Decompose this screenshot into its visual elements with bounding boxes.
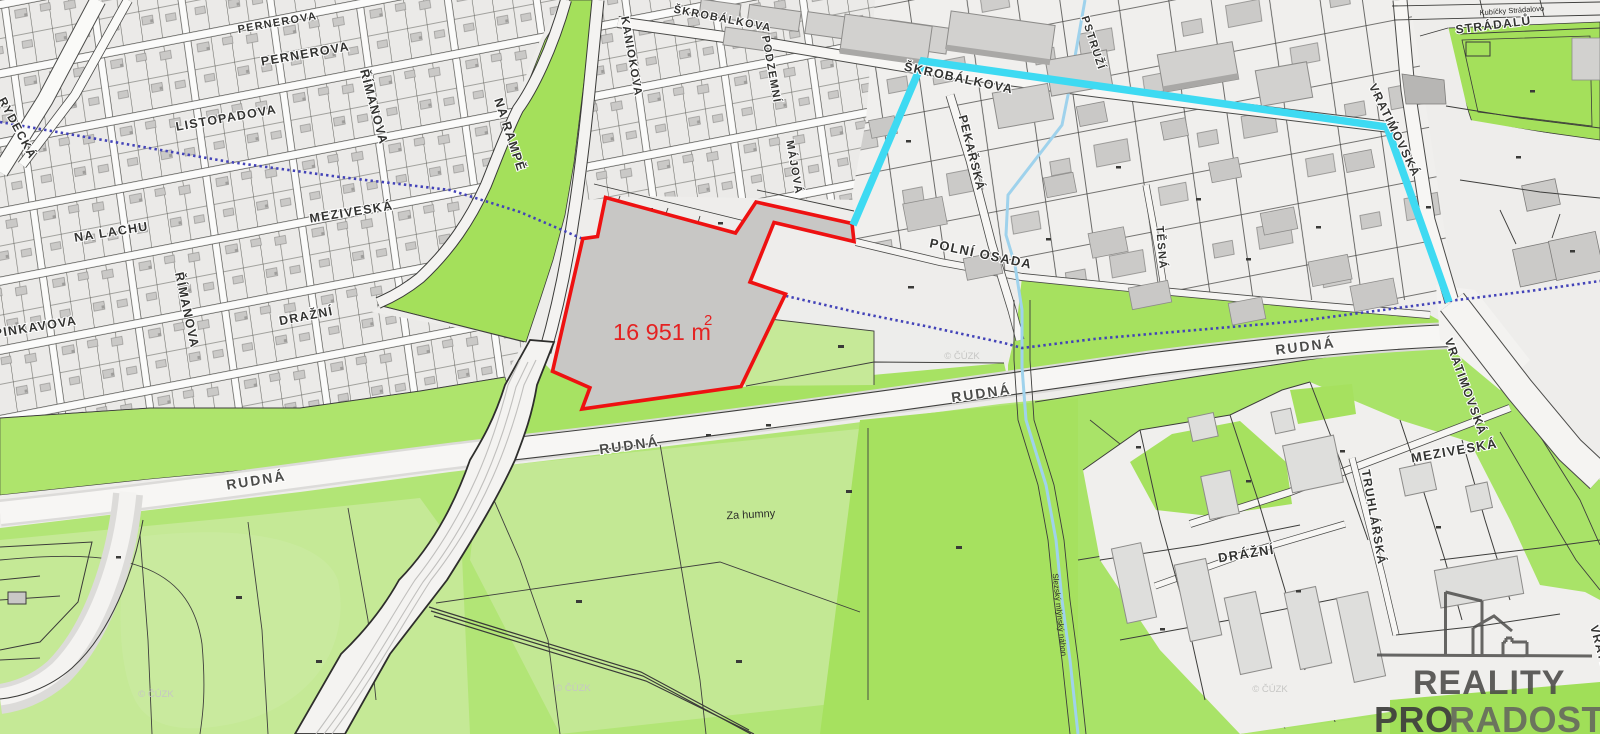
svg-text:2: 2 — [704, 312, 712, 329]
svg-text:© ČÚZK: © ČÚZK — [944, 351, 980, 362]
svg-text:16 951 m: 16 951 m — [613, 319, 711, 345]
svg-text:© ČÚZK: © ČÚZK — [1252, 684, 1288, 695]
svg-text:RADOST: RADOST — [1449, 699, 1600, 734]
svg-text:PRO: PRO — [1374, 699, 1454, 734]
svg-text:© ČÚZK: © ČÚZK — [138, 689, 174, 700]
svg-text:© ČÚZK: © ČÚZK — [555, 683, 591, 694]
svg-text:REALITY: REALITY — [1413, 664, 1565, 702]
